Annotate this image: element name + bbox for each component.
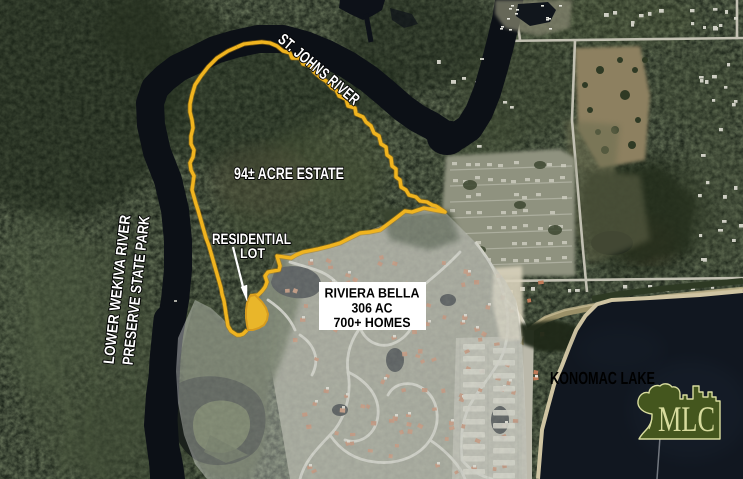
- svg-text:MLC: MLC: [658, 399, 715, 439]
- svg-text:LOT: LOT: [240, 245, 265, 261]
- svg-text:306 AC: 306 AC: [352, 301, 393, 316]
- svg-text:94± ACRE ESTATE: 94± ACRE ESTATE: [234, 165, 344, 183]
- svg-text:RIVIERA BELLA: RIVIERA BELLA: [325, 286, 420, 301]
- svg-text:700+ HOMES: 700+ HOMES: [334, 315, 411, 330]
- svg-text:KONOMAC LAKE: KONOMAC LAKE: [550, 368, 655, 388]
